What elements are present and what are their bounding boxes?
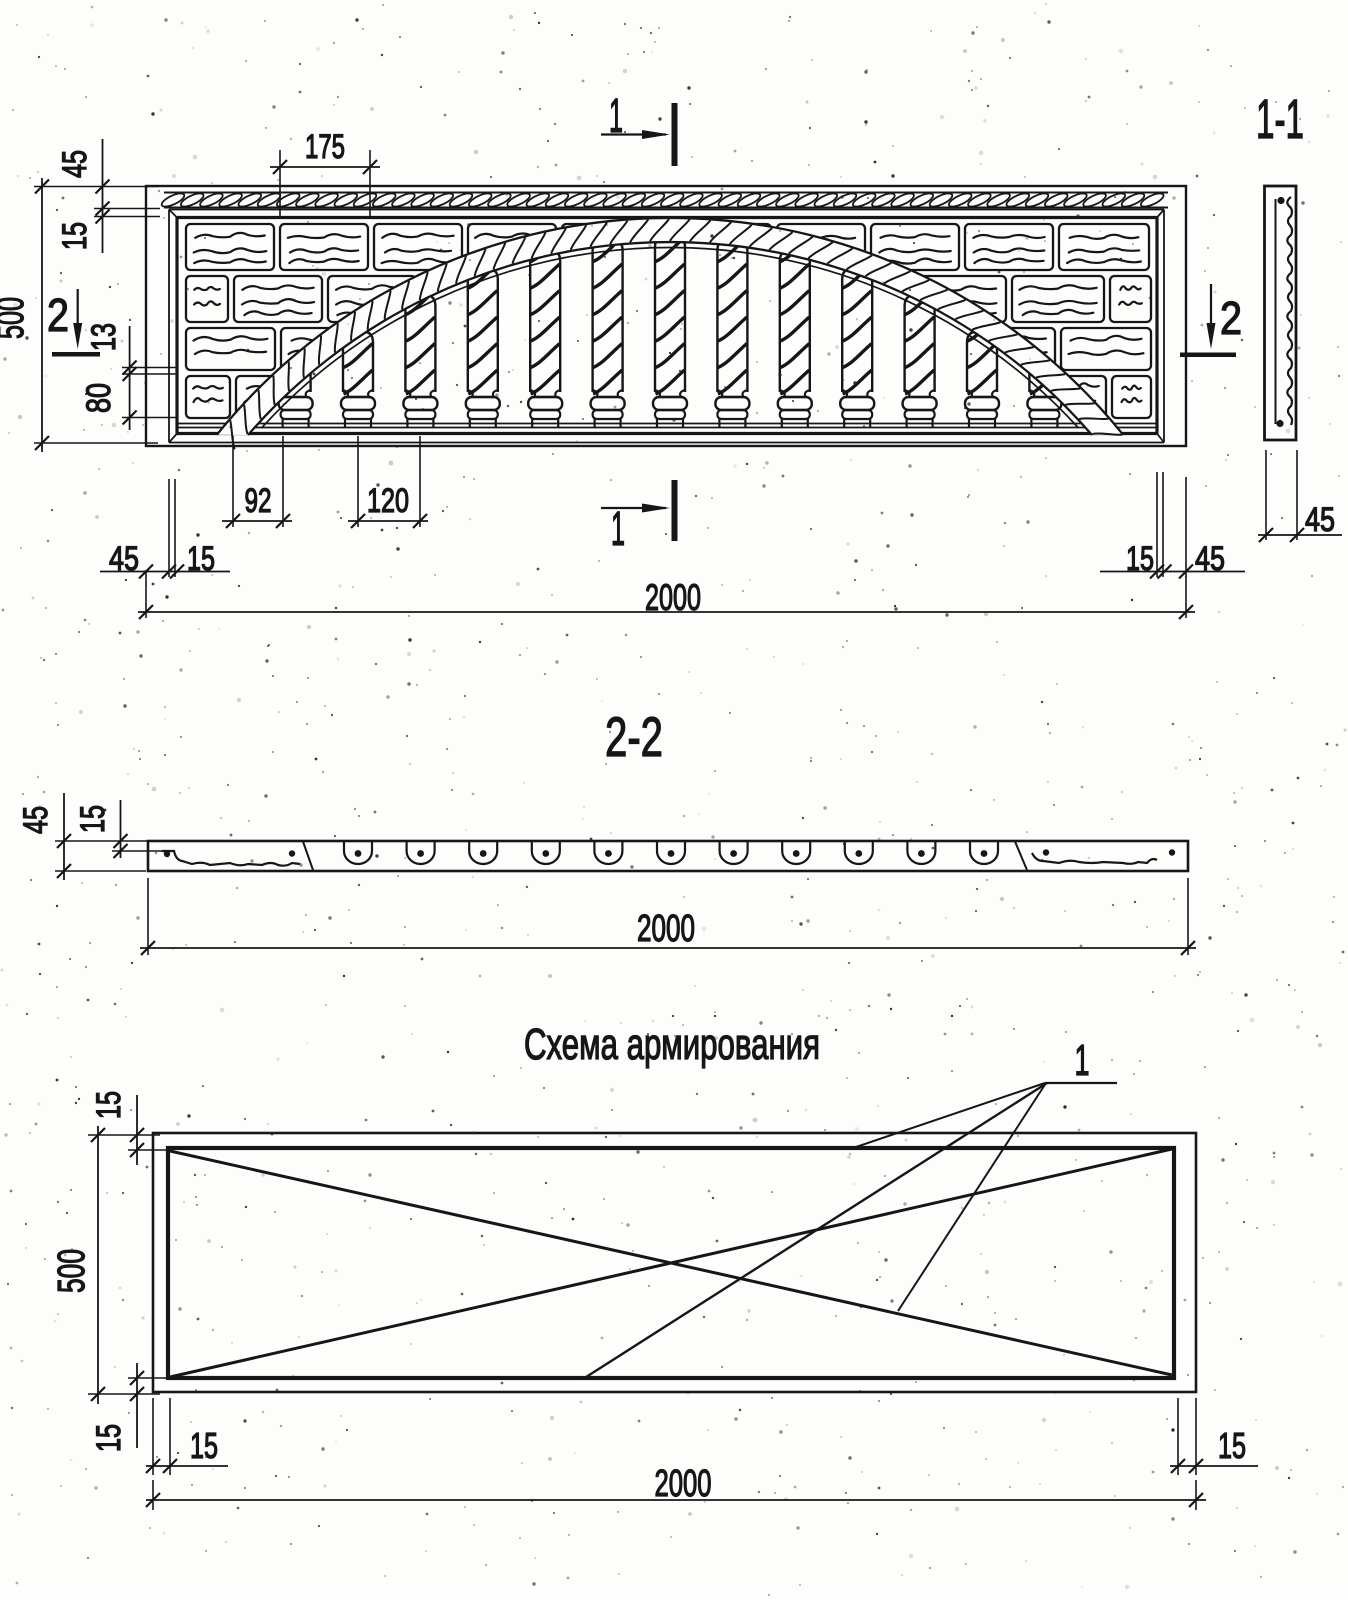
svg-text:45: 45 [1195, 540, 1225, 578]
svg-text:45: 45 [17, 806, 55, 834]
svg-text:13: 13 [85, 323, 123, 351]
svg-text:2-2: 2-2 [605, 705, 663, 768]
svg-text:15: 15 [1126, 540, 1154, 578]
svg-text:1: 1 [1075, 1036, 1090, 1085]
svg-text:15: 15 [90, 1091, 128, 1119]
svg-text:45: 45 [1305, 501, 1335, 539]
svg-text:2: 2 [1220, 292, 1242, 344]
svg-text:15: 15 [1218, 1425, 1246, 1466]
svg-text:15: 15 [74, 805, 112, 833]
svg-text:1-1: 1-1 [1256, 87, 1304, 150]
svg-text:15: 15 [190, 1425, 218, 1466]
svg-text:1: 1 [609, 90, 623, 143]
svg-text:2000: 2000 [655, 1463, 712, 1505]
svg-text:80: 80 [80, 383, 118, 413]
svg-text:15: 15 [187, 540, 215, 578]
svg-text:15: 15 [90, 1424, 128, 1452]
svg-text:92: 92 [245, 482, 272, 520]
svg-text:2: 2 [47, 289, 69, 341]
svg-text:45: 45 [109, 540, 139, 578]
svg-text:Схема армирования: Схема армирования [524, 1020, 820, 1069]
svg-text:500: 500 [51, 1249, 93, 1293]
svg-text:15: 15 [56, 222, 94, 250]
svg-text:45: 45 [56, 150, 94, 178]
svg-text:175: 175 [305, 128, 345, 166]
svg-text:120: 120 [367, 482, 409, 520]
svg-text:2000: 2000 [645, 577, 701, 618]
svg-text:2000: 2000 [637, 908, 695, 950]
svg-text:1: 1 [611, 503, 625, 556]
